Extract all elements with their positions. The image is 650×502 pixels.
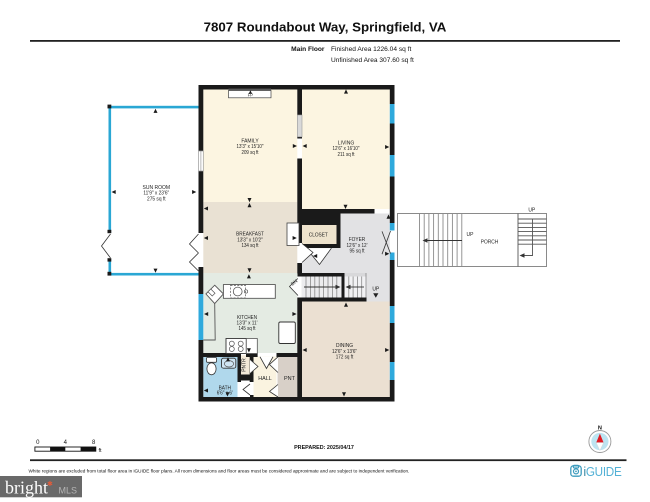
svg-text:145 sq ft: 145 sq ft — [239, 326, 256, 332]
svg-text:PNTR: PNTR — [241, 358, 247, 372]
svg-text:CLOSET: CLOSET — [309, 232, 329, 238]
svg-text:7807 Roundabout Way, Springfie: 7807 Roundabout Way, Springfield, VA — [204, 19, 447, 34]
svg-text:211 sq ft: 211 sq ft — [338, 152, 355, 158]
svg-text:HALL: HALL — [258, 376, 272, 382]
svg-text:172 sq ft: 172 sq ft — [336, 355, 354, 361]
svg-text:Finished Area 1226.04 sq ft: Finished Area 1226.04 sq ft — [331, 46, 411, 53]
svg-text:PORCH: PORCH — [481, 240, 499, 246]
svg-text:iGUIDE: iGUIDE — [584, 464, 622, 479]
svg-text:Main Floor: Main Floor — [291, 46, 325, 53]
svg-text:UP: UP — [372, 286, 380, 292]
svg-text:8: 8 — [92, 440, 96, 446]
svg-text:PREPARED: 2025/04/17: PREPARED: 2025/04/17 — [294, 445, 354, 451]
svg-text:ft: ft — [99, 448, 102, 454]
svg-text:275 sq ft: 275 sq ft — [147, 196, 166, 202]
svg-text:209 sq ft: 209 sq ft — [242, 150, 259, 156]
svg-text:UP: UP — [467, 232, 475, 238]
svg-text:95 sq ft: 95 sq ft — [350, 249, 365, 255]
svg-text:0: 0 — [36, 440, 40, 446]
svg-text:134 sq ft: 134 sq ft — [242, 243, 259, 249]
svg-text:MLS: MLS — [59, 486, 78, 496]
svg-text:bright: bright — [5, 478, 48, 498]
svg-text:6'6" x 6': 6'6" x 6' — [217, 391, 233, 397]
svg-text:✱: ✱ — [47, 480, 53, 488]
svg-text:UP: UP — [528, 208, 536, 214]
svg-text:Unfinished Area 307.60 sq ft: Unfinished Area 307.60 sq ft — [331, 57, 414, 64]
svg-text:4: 4 — [64, 440, 68, 446]
svg-text:White regions are excluded fro: White regions are excluded from total fl… — [29, 468, 410, 473]
svg-text:PNT: PNT — [284, 376, 296, 382]
